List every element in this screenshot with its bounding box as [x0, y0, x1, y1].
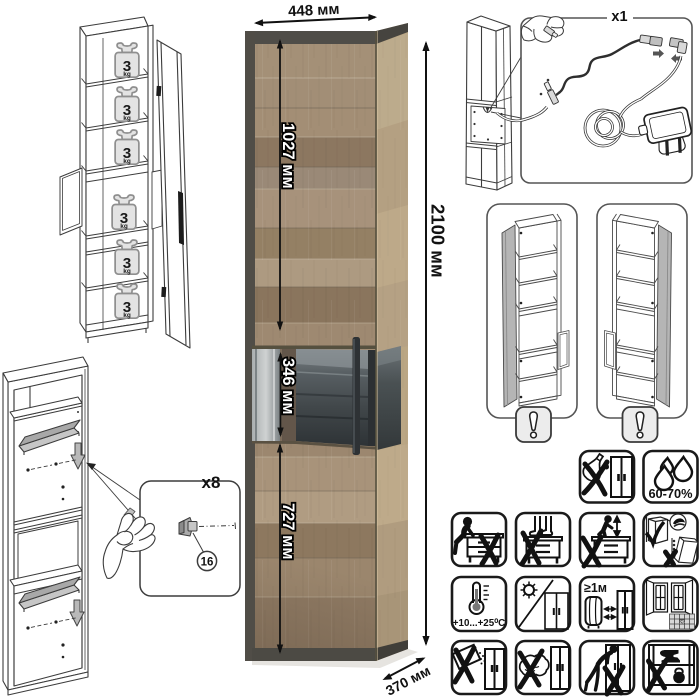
svg-text:727 мм: 727 мм [279, 503, 297, 560]
svg-text:2100 мм: 2100 мм [428, 204, 449, 278]
svg-text:16: 16 [201, 557, 214, 569]
svg-text:+10...+25⁰C: +10...+25⁰C [453, 618, 505, 629]
svg-text:346 мм: 346 мм [279, 358, 297, 415]
svg-text:x8: x8 [202, 473, 221, 492]
svg-text:448 мм: 448 мм [288, 1, 340, 20]
svg-text:25: 25 [680, 620, 685, 625]
svg-text:x1: x1 [611, 9, 627, 25]
svg-text:≥1м: ≥1м [584, 581, 607, 595]
svg-text:1027 мм: 1027 мм [279, 123, 297, 189]
svg-text:60-70%: 60-70% [648, 486, 693, 501]
